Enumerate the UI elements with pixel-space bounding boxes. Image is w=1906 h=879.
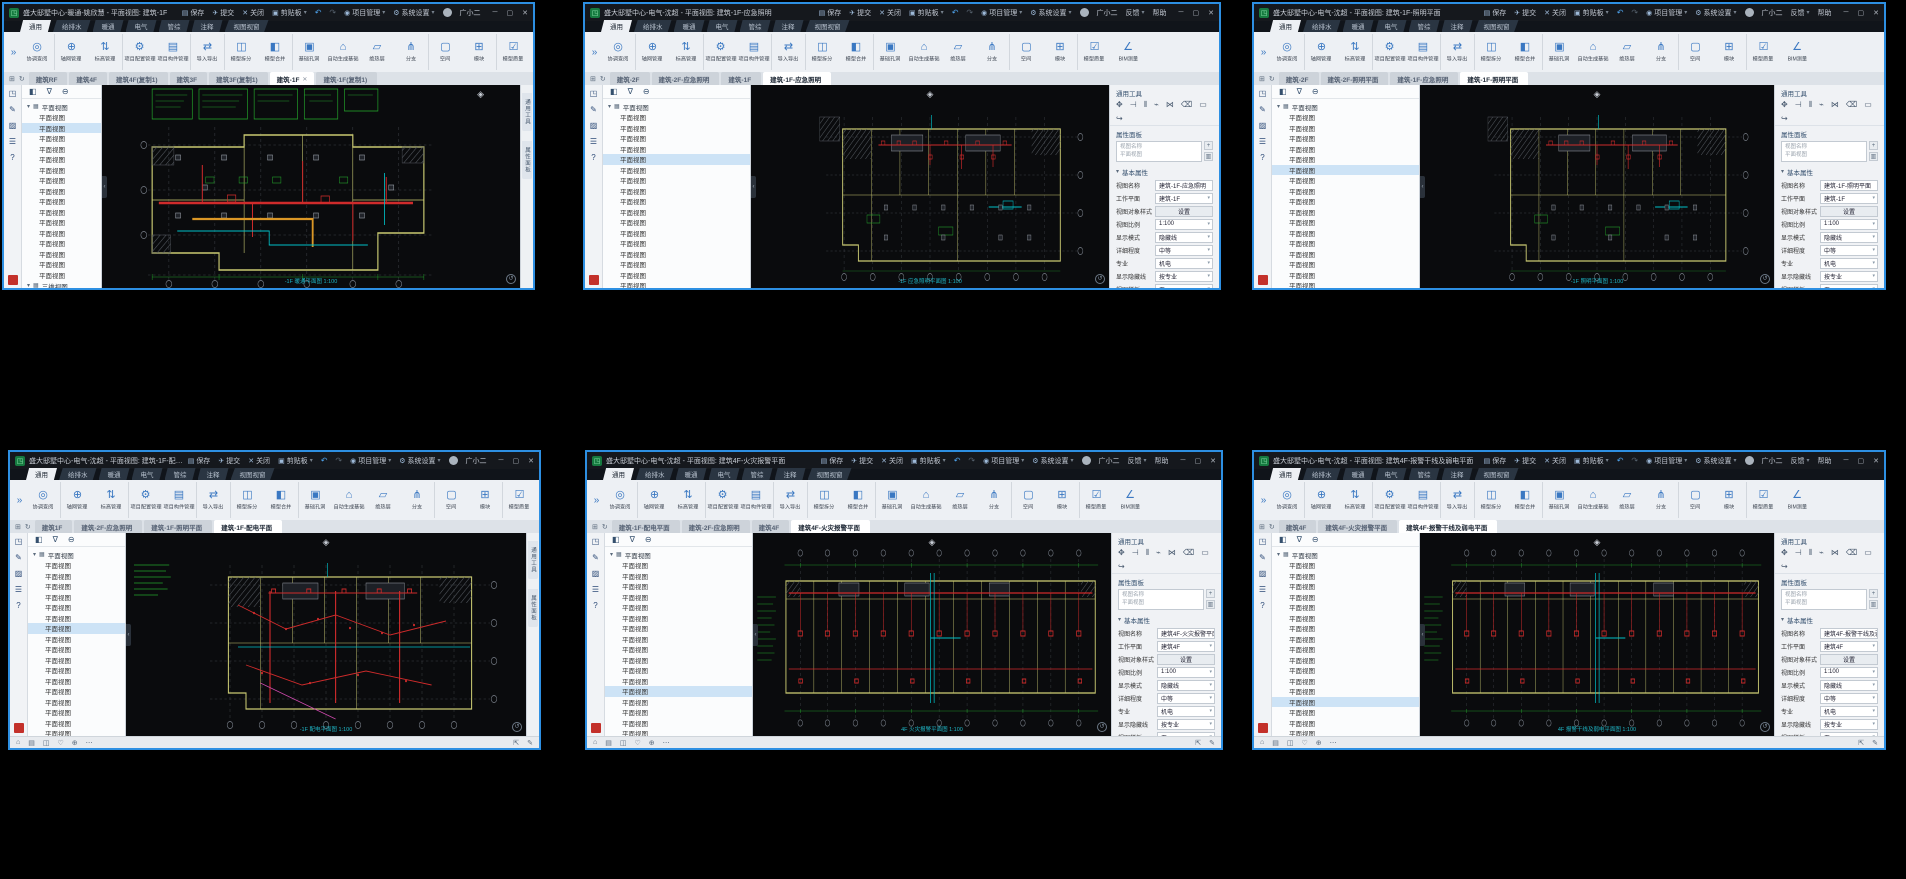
view-compass[interactable]: ◈ [1594, 89, 1601, 100]
property-value[interactable]: 机电 [1820, 258, 1878, 269]
system-settings-button[interactable]: ⚙系统设置▾ [1030, 8, 1071, 18]
document-tab[interactable]: 建筑4F-报警干线及弱电平面 [1399, 520, 1497, 533]
model-view-icon[interactable]: ◳ [1259, 89, 1267, 98]
move-icon[interactable]: ✥ [1781, 100, 1788, 110]
collapse-all-icon[interactable]: ⊖ [1312, 535, 1319, 544]
tree-view-item[interactable]: 平面视图 [28, 707, 125, 718]
minimize-button[interactable]: ─ [1844, 457, 1849, 465]
collapse-panel-handle[interactable]: ‹ [1420, 176, 1425, 198]
property-value[interactable]: 隐藏线 [1820, 232, 1878, 243]
window-titlebar[interactable]: ◳ 盛大邸墅中心-电气-沈超 - 平面视图: 建筑4F-报警干线及弱电平面 ▤保… [1254, 452, 1884, 469]
project-files-icon[interactable]: ▨ [1259, 121, 1267, 130]
view-compass[interactable]: ◈ [477, 89, 484, 100]
close-doc-button[interactable]: ✕关闭 [881, 456, 903, 466]
connect-icon[interactable]: ⌁ [1154, 100, 1159, 110]
tree-view-item[interactable]: 平面视图 [603, 280, 750, 288]
property-value[interactable]: 中等 [1820, 245, 1878, 256]
ribbon-button[interactable]: ⚙ 项目配置管理 [1372, 34, 1406, 70]
system-settings-button[interactable]: ⚙系统设置▾ [1695, 456, 1736, 466]
property-value[interactable]: 建筑-1F [1820, 193, 1878, 204]
user-avatar[interactable] [1082, 456, 1091, 465]
markup-pen-icon[interactable]: ✎ [592, 553, 599, 562]
ribbon-button[interactable]: ⌂ 自动生成基础 [909, 482, 943, 518]
filter-icon[interactable]: ∇ [630, 535, 635, 544]
undo-button[interactable]: ↶ [1617, 456, 1624, 465]
tree-view-item[interactable]: 平面视图 [1272, 634, 1419, 645]
tree-view-item[interactable]: 平面视图 [605, 581, 752, 592]
ribbon-tab[interactable]: 注释 [192, 20, 223, 32]
mirror-icon[interactable]: ⋈ [1166, 100, 1174, 110]
ribbon-tab[interactable]: 视图视窗 [231, 468, 275, 480]
measure-icon[interactable]: ▭ [1864, 548, 1872, 558]
close-doc-button[interactable]: ✕关闭 [1544, 8, 1566, 18]
ribbon-button[interactable]: ◎ 协调查阅 [1270, 482, 1304, 518]
close-doc-button[interactable]: ✕关闭 [248, 456, 270, 466]
help-button[interactable]: 帮助 [1818, 8, 1832, 18]
project-management-button[interactable]: ◉项目管理▾ [344, 8, 385, 18]
list-panel-icon[interactable]: ☰ [1259, 585, 1266, 594]
tree-view-item[interactable]: 平面视图 [28, 665, 125, 676]
markup-pen-icon[interactable]: ✎ [1259, 553, 1266, 562]
tree-view-item[interactable]: 平面视图 [605, 686, 752, 697]
ribbon-button[interactable]: ∠ BIM测量 [1113, 482, 1147, 518]
align-icon[interactable]: ⊣ [1795, 100, 1802, 110]
redo-button[interactable]: ↷ [1631, 8, 1638, 17]
ribbon-tab[interactable]: 视图视窗 [806, 20, 850, 32]
connect-icon[interactable]: ⌁ [1819, 548, 1824, 558]
tree-view-item[interactable]: 平面视图 [1272, 560, 1419, 571]
common-tools-tab[interactable]: 通用工具 [528, 541, 538, 579]
array-icon[interactable]: ⫴ [1144, 100, 1147, 110]
ribbon-button[interactable]: ∠ BIM测量 [1111, 34, 1145, 70]
ribbon-button[interactable]: ⇅ 标高管理 [671, 482, 705, 518]
ribbon-button[interactable]: ⋔ 分支 [394, 34, 428, 70]
project-management-button[interactable]: ◉项目管理▾ [983, 456, 1024, 466]
tree-view-item[interactable]: 平面视图 [28, 686, 125, 697]
property-value[interactable]: 建筑-1F-应急照明 [1155, 180, 1213, 191]
reset-view-button[interactable]: ↺ [1760, 274, 1770, 284]
close-window-button[interactable]: ✕ [1208, 9, 1214, 17]
redo-button[interactable]: ↷ [335, 456, 342, 465]
tree-view-item[interactable]: 平面视图 [28, 697, 125, 708]
ribbon-tab[interactable]: 电气 [126, 20, 157, 32]
ribbon-tab[interactable]: 管综 [1409, 20, 1440, 32]
close-window-button[interactable]: ✕ [1210, 457, 1216, 465]
ribbon-button[interactable]: ▱ 绝热层 [943, 482, 977, 518]
model-view-icon[interactable]: ◳ [592, 537, 600, 546]
tree-view-item[interactable]: 平面视图 [22, 259, 101, 270]
tree-view-item[interactable]: 平面视图 [1272, 154, 1419, 165]
ribbon-tab[interactable]: 给排水 [1303, 468, 1341, 480]
property-value[interactable]: 无 [1157, 732, 1215, 737]
tree-view-item[interactable]: 平面视图 [1272, 207, 1419, 218]
property-value[interactable]: 建筑4F [1157, 641, 1215, 652]
basic-properties-section[interactable]: ▾ 基本属性 [1110, 165, 1219, 179]
view-selector-box[interactable]: 视图名称 平面视图 [1118, 589, 1204, 610]
redo-button[interactable]: ↷ [968, 456, 975, 465]
ribbon-tab[interactable]: 注释 [1442, 20, 1473, 32]
basic-properties-section[interactable]: ▾ 基本属性 [1112, 613, 1221, 627]
feedback-button[interactable]: 反馈▾ [1791, 8, 1810, 18]
add-view-button[interactable]: + [1869, 141, 1878, 150]
ribbon-tab[interactable]: 通用 [601, 20, 632, 32]
tree-view-item[interactable]: 平面视图 [605, 571, 752, 582]
document-tab[interactable]: 建筑4F(复制1) [109, 72, 168, 85]
tile-views-icon[interactable]: ⊞ [590, 75, 596, 83]
ribbon-button[interactable]: ⋔ 分支 [975, 34, 1009, 70]
ribbon-button[interactable]: ◫ 模型拆分 [805, 34, 839, 70]
ribbon-button[interactable]: ⊞ 模块 [1712, 482, 1746, 518]
ribbon-button[interactable]: ⊕ 轴网管理 [635, 34, 669, 70]
ribbon-button[interactable]: ⇄ 导入导出 [773, 482, 807, 518]
ribbon-tab[interactable]: 电气 [1376, 20, 1407, 32]
ribbon-button[interactable]: ☑ 模型质量 [1077, 34, 1111, 70]
more-icon[interactable]: ⋯ [1330, 739, 1337, 747]
drawing-canvas[interactable]: ‹ ◈ -1F 应急照明平面图 1:100 ↺ [751, 85, 1109, 288]
more-icon[interactable]: ⋯ [86, 739, 93, 747]
tree-view-item[interactable]: 平面视图 [1272, 655, 1419, 666]
document-tab[interactable]: 建筑-1F-照明平面 [1460, 72, 1528, 85]
maximize-button[interactable]: ▢ [507, 9, 514, 17]
tree-view-item[interactable]: 平面视图 [1272, 602, 1419, 613]
ribbon-tab[interactable]: 暖通 [99, 468, 130, 480]
list-panel-icon[interactable]: ☰ [592, 585, 599, 594]
property-value[interactable]: 设置 [1155, 206, 1213, 217]
close-window-button[interactable]: ✕ [1873, 9, 1879, 17]
tree-view-item[interactable]: 平面视图 [22, 154, 101, 165]
tree-view-item[interactable]: 平面视图 [605, 644, 752, 655]
user-avatar[interactable] [1745, 456, 1754, 465]
ribbon-button[interactable]: ⇅ 标高管理 [1338, 34, 1372, 70]
tree-view-item[interactable]: 平面视图 [605, 728, 752, 736]
project-files-icon[interactable]: ▨ [15, 569, 23, 578]
tree-view-item[interactable]: 平面视图 [22, 144, 101, 155]
panel-toggle-icon[interactable]: ◧ [29, 87, 37, 96]
close-window-button[interactable]: ✕ [528, 457, 534, 465]
reset-view-button[interactable]: ↺ [1095, 274, 1105, 284]
collapse-panel-handle[interactable]: ‹ [102, 176, 107, 198]
user-avatar[interactable] [449, 456, 458, 465]
home-icon[interactable]: ⌂ [16, 739, 20, 747]
ribbon-button[interactable]: ⌂ 自动生成基础 [326, 34, 360, 70]
ribbon-button[interactable]: ⚙ 项目配置管理 [703, 34, 737, 70]
more-icon[interactable]: ⋯ [663, 739, 670, 747]
add-icon[interactable]: ⊕ [72, 739, 78, 747]
ribbon-button[interactable]: ⊕ 轴网管理 [637, 482, 671, 518]
property-value[interactable]: 设置 [1157, 654, 1215, 665]
panel-toggle-icon[interactable]: ◧ [610, 87, 618, 96]
document-tab[interactable]: 建筑4F [1279, 520, 1317, 533]
ribbon-tab[interactable]: 给排水 [1303, 20, 1341, 32]
drawing-canvas[interactable]: ‹ ◈ -1F 照明平面图 1:100 ↺ [1420, 85, 1774, 288]
ribbon-button[interactable]: ⊕ 轴网管理 [54, 34, 88, 70]
clipboard-button[interactable]: ▣剪贴板▾ [278, 456, 313, 466]
tree-view-item[interactable]: 平面视图 [22, 238, 101, 249]
document-tab[interactable]: 建筑RF [29, 72, 68, 85]
feedback-button[interactable]: 反馈▾ [1791, 456, 1810, 466]
ribbon-tab[interactable]: 给排水 [53, 20, 91, 32]
filter-icon[interactable]: ∇ [628, 87, 633, 96]
save-button[interactable]: ▤保存 [819, 8, 842, 18]
export-icon[interactable]: ⇱ [513, 739, 519, 747]
drawing-canvas[interactable]: ‹ ◈ 4F 报警干线及弱电平面图 1:100 ↺ [1420, 533, 1774, 736]
ribbon-tab[interactable]: 视图视窗 [225, 20, 269, 32]
property-value[interactable]: 中等 [1157, 693, 1215, 704]
collapse-all-icon[interactable]: ⊖ [645, 535, 652, 544]
project-files-icon[interactable]: ▨ [590, 121, 598, 130]
minimize-button[interactable]: ─ [499, 457, 504, 465]
tree-view-item[interactable]: 平面视图 [28, 644, 125, 655]
clipboard-button[interactable]: ▣剪贴板▾ [911, 456, 946, 466]
tree-view-item[interactable]: 平面视图 [1272, 697, 1419, 708]
tree-view-item[interactable]: 平面视图 [1272, 280, 1419, 288]
help-icon[interactable]: ? [10, 153, 14, 162]
tree-view-item[interactable]: 平面视图 [603, 175, 750, 186]
maximize-button[interactable]: ▢ [513, 457, 520, 465]
property-value[interactable]: 建筑4F-报警干线及弱电平面 [1820, 628, 1878, 639]
tree-view-item[interactable]: 平面视图 [22, 270, 101, 281]
submit-button[interactable]: ✈提交 [851, 456, 873, 466]
tree-view-item[interactable]: 平面视图 [28, 560, 125, 571]
model-view-icon[interactable]: ◳ [1259, 537, 1267, 546]
collapse-panel-handle[interactable]: ‹ [753, 624, 758, 646]
tile-views-icon[interactable]: ⊞ [592, 523, 598, 531]
ribbon-tab[interactable]: 视图视窗 [1475, 20, 1519, 32]
tree-section[interactable]: ▾ ▦ 平面视图 [1272, 549, 1419, 560]
tree-view-item[interactable]: 平面视图 [1272, 238, 1419, 249]
save-button[interactable]: ▤保存 [188, 456, 211, 466]
view-compass[interactable]: ◈ [929, 537, 936, 548]
window-titlebar[interactable]: ◳ 盛大邸墅中心-电气-沈超 - 平面视图: 建筑-1F-应急照明 ▤保存 ✈提… [585, 4, 1219, 21]
ribbon-button[interactable]: ▣ 基础孔洞 [875, 482, 909, 518]
array-icon[interactable]: ⫴ [1809, 548, 1812, 558]
tree-view-item[interactable]: 平面视图 [603, 228, 750, 239]
ribbon-button[interactable]: ▣ 基础孔洞 [292, 34, 326, 70]
tree-view-item[interactable]: 平面视图 [1272, 665, 1419, 676]
refresh-icon[interactable]: ↻ [602, 523, 608, 531]
ribbon-tab[interactable]: 注释 [1442, 468, 1473, 480]
tree-view-item[interactable]: 平面视图 [28, 655, 125, 666]
project-files-icon[interactable]: ▨ [592, 569, 600, 578]
tree-view-item[interactable]: 平面视图 [22, 217, 101, 228]
ribbon-button[interactable]: ⊕ 轴网管理 [1304, 34, 1338, 70]
property-value[interactable]: 按专业 [1820, 271, 1878, 282]
properties-panel-tab[interactable]: 属性面板 [522, 141, 532, 179]
ribbon-tab[interactable]: 通用 [26, 468, 57, 480]
save-button[interactable]: ▤保存 [1484, 456, 1507, 466]
ribbon-button[interactable]: ◎ 协调查阅 [26, 482, 60, 518]
window-titlebar[interactable]: ◳ 盛大邸墅中心-暖通-姚欣慧 - 平面视图: 建筑-1F ▤保存 ✈提交 ✕关… [4, 4, 533, 21]
undo-button[interactable]: ↶ [315, 8, 322, 17]
export-icon[interactable]: ⇱ [1858, 739, 1864, 747]
tile-views-icon[interactable]: ⊞ [1259, 523, 1265, 531]
ribbon-button[interactable]: ▢ 空间 [1678, 482, 1712, 518]
view-selector-box[interactable]: 视图名称 平面视图 [1781, 589, 1867, 610]
ribbon-tab[interactable]: 暖通 [674, 20, 705, 32]
ribbon-button[interactable]: ◧ 模型合并 [264, 482, 298, 518]
refresh-icon[interactable]: ↻ [1269, 75, 1275, 83]
model-view-icon[interactable]: ◳ [9, 89, 17, 98]
property-value[interactable]: 1:100 [1157, 667, 1215, 678]
ribbon-button[interactable]: ▱ 绝热层 [941, 34, 975, 70]
add-view-button[interactable]: + [1206, 589, 1215, 598]
document-tab[interactable]: 建筑-2F-应急照明 [652, 72, 720, 85]
tree-view-item[interactable]: 平面视图 [1272, 676, 1419, 687]
ribbon-button[interactable]: ⌂ 自动生成基础 [907, 34, 941, 70]
window-titlebar[interactable]: ◳ 盛大邸墅中心-电气-沈超 - 平面视图: 建筑-1F-配电平面 ▤保存 ✈提… [10, 452, 539, 469]
view-selector[interactable]: 视图名称 平面视图 + ▥ [1775, 588, 1884, 613]
help-icon[interactable]: ? [591, 153, 595, 162]
tree-view-item[interactable]: 平面视图 [1272, 228, 1419, 239]
view-selector-box[interactable]: 视图名称 平面视图 [1781, 141, 1867, 162]
document-tab[interactable]: 建筑-2F-应急照明 [74, 520, 142, 533]
ribbon-tab[interactable]: 暖通 [1343, 20, 1374, 32]
tree-view-item[interactable]: 平面视图 [22, 175, 101, 186]
undo-button[interactable]: ↶ [952, 8, 959, 17]
add-view-button[interactable]: + [1204, 141, 1213, 150]
ribbon-button[interactable]: ⋔ 分支 [977, 482, 1011, 518]
tree-view-item[interactable]: 平面视图 [28, 623, 125, 634]
ribbon-button[interactable]: ▱ 绝热层 [1610, 482, 1644, 518]
ribbon-tab[interactable]: 给排水 [59, 468, 97, 480]
tree-view-item[interactable]: 平面视图 [1272, 175, 1419, 186]
property-value[interactable]: 按专业 [1820, 719, 1878, 730]
ribbon-button[interactable]: ⊕ 轴网管理 [1304, 482, 1338, 518]
ribbon-tab[interactable]: 暖通 [93, 20, 124, 32]
ribbon-tab[interactable]: 视图视窗 [1475, 468, 1519, 480]
tree-view-item[interactable]: 平面视图 [28, 634, 125, 645]
markup-pen-icon[interactable]: ✎ [1259, 105, 1266, 114]
property-value[interactable]: 隐藏线 [1820, 680, 1878, 691]
help-icon[interactable]: ? [593, 601, 597, 610]
collapse-panel-handle[interactable]: ‹ [126, 624, 131, 646]
ribbon-tab[interactable]: 管综 [740, 20, 771, 32]
ribbon-button[interactable]: ⚙ 项目配置管理 [705, 482, 739, 518]
project-management-button[interactable]: ◉项目管理▾ [1646, 8, 1687, 18]
ribbon-button[interactable]: ▢ 空间 [434, 482, 468, 518]
export-icon[interactable]: ⇱ [1195, 739, 1201, 747]
undo-button[interactable]: ↶ [954, 456, 961, 465]
tree-view-item[interactable]: 平面视图 [1272, 718, 1419, 729]
help-button[interactable]: 帮助 [1155, 456, 1169, 466]
refresh-icon[interactable]: ↻ [19, 75, 25, 83]
rotate-icon[interactable]: ↪ [1116, 114, 1123, 123]
ribbon-tab[interactable]: 电气 [707, 20, 738, 32]
tree-view-item[interactable]: 平面视图 [605, 634, 752, 645]
edit-icon[interactable]: ✎ [1872, 739, 1878, 747]
move-icon[interactable]: ✥ [1118, 548, 1125, 558]
ribbon-button[interactable]: ◎ 协调查阅 [20, 34, 54, 70]
tree-view-item[interactable]: 平面视图 [28, 718, 125, 729]
ribbon-expand-icon[interactable]: » [1257, 482, 1270, 518]
help-icon[interactable]: ? [1260, 153, 1264, 162]
ribbon-tab[interactable]: 暖通 [676, 468, 707, 480]
tree-view-item[interactable]: 平面视图 [603, 123, 750, 134]
ribbon-tab[interactable]: 注释 [775, 468, 806, 480]
ribbon-button[interactable]: ⊞ 模块 [1045, 482, 1079, 518]
redo-button[interactable]: ↷ [966, 8, 973, 17]
filter-list-button[interactable]: ▥ [1869, 152, 1878, 161]
tree-view-item[interactable]: 平面视图 [1272, 728, 1419, 736]
ribbon-tab[interactable]: 电气 [132, 468, 163, 480]
tree-view-item[interactable]: 平面视图 [603, 207, 750, 218]
save-button[interactable]: ▤保存 [1484, 8, 1507, 18]
project-management-button[interactable]: ◉项目管理▾ [1646, 456, 1687, 466]
list-panel-icon[interactable]: ☰ [15, 585, 22, 594]
user-avatar[interactable] [443, 8, 452, 17]
ribbon-button[interactable]: ⊞ 模块 [468, 482, 502, 518]
property-value[interactable]: 隐藏线 [1155, 232, 1213, 243]
close-tab-icon[interactable]: ✕ [302, 76, 307, 83]
model-view-icon[interactable]: ◳ [590, 89, 598, 98]
minimize-button[interactable]: ─ [1181, 457, 1186, 465]
ribbon-button[interactable]: ◧ 模型合并 [839, 34, 873, 70]
list-panel-icon[interactable]: ☰ [9, 137, 16, 146]
model-view-icon[interactable]: ◳ [15, 537, 23, 546]
document-tab[interactable]: 建筑-1F✕ [270, 72, 315, 85]
ribbon-button[interactable]: ⊞ 模块 [462, 34, 496, 70]
move-icon[interactable]: ✥ [1781, 548, 1788, 558]
document-tab[interactable]: 建筑4F [69, 72, 107, 85]
list-panel-icon[interactable]: ☰ [590, 137, 597, 146]
property-value[interactable]: 无 [1820, 732, 1878, 737]
undo-button[interactable]: ↶ [321, 456, 328, 465]
align-icon[interactable]: ⊣ [1130, 100, 1137, 110]
tree-view-item[interactable]: 平面视图 [1272, 686, 1419, 697]
ribbon-button[interactable]: ◧ 模型合并 [1508, 34, 1542, 70]
ribbon-tab[interactable]: 管综 [1409, 468, 1440, 480]
tree-view-item[interactable]: 平面视图 [603, 249, 750, 260]
redo-button[interactable]: ↷ [329, 8, 336, 17]
ribbon-tab[interactable]: 通用 [1270, 20, 1301, 32]
ribbon-button[interactable]: ▱ 绝热层 [1610, 34, 1644, 70]
tree-view-item[interactable]: 平面视图 [22, 196, 101, 207]
system-settings-button[interactable]: ⚙系统设置▾ [393, 8, 434, 18]
ribbon-button[interactable]: ∠ BIM测量 [1780, 482, 1814, 518]
ribbon-button[interactable]: ⇄ 导入导出 [1440, 34, 1474, 70]
basic-properties-section[interactable]: ▾ 基本属性 [1775, 613, 1884, 627]
window-titlebar[interactable]: ◳ 盛大邸墅中心-电气-沈超 - 平面视图: 建筑4F-火灾报警平面 ▤保存 ✈… [587, 452, 1221, 469]
clipboard-button[interactable]: ▣剪贴板▾ [909, 8, 944, 18]
mirror-icon[interactable]: ⋈ [1831, 548, 1839, 558]
grid-view-icon[interactable]: ▤ [28, 739, 35, 747]
tree-view-item[interactable]: 平面视图 [605, 718, 752, 729]
ribbon-tab[interactable]: 注释 [773, 20, 804, 32]
ribbon-button[interactable]: ◫ 模型拆分 [1474, 482, 1508, 518]
tree-view-item[interactable]: 平面视图 [28, 592, 125, 603]
undo-button[interactable]: ↶ [1617, 8, 1624, 17]
ribbon-tab[interactable]: 暖通 [1343, 468, 1374, 480]
tree-view-item[interactable]: 平面视图 [1272, 581, 1419, 592]
ribbon-button[interactable]: ▣ 基础孔洞 [1542, 482, 1576, 518]
tree-view-item[interactable]: 平面视图 [603, 144, 750, 155]
ribbon-button[interactable]: ▢ 空间 [1678, 34, 1712, 70]
ribbon-button[interactable]: ◫ 模型拆分 [807, 482, 841, 518]
tree-view-item[interactable]: 平面视图 [22, 165, 101, 176]
document-tab[interactable]: 建筑-2F [1279, 72, 1319, 85]
panel-toggle-icon[interactable]: ◧ [35, 535, 43, 544]
user-avatar[interactable] [1080, 8, 1089, 17]
ribbon-button[interactable]: ⊞ 模块 [1043, 34, 1077, 70]
ribbon-button[interactable]: ⊞ 模块 [1712, 34, 1746, 70]
tree-view-item[interactable]: 平面视图 [603, 165, 750, 176]
minimize-button[interactable]: ─ [1844, 9, 1849, 17]
tree-view-item[interactable]: 平面视图 [603, 196, 750, 207]
refresh-icon[interactable]: ↻ [25, 523, 31, 531]
rotate-icon[interactable]: ↪ [1781, 114, 1788, 123]
ribbon-button[interactable]: ▣ 基础孔洞 [873, 34, 907, 70]
tree-section[interactable]: ▾ ▦ 平面视图 [28, 549, 125, 560]
